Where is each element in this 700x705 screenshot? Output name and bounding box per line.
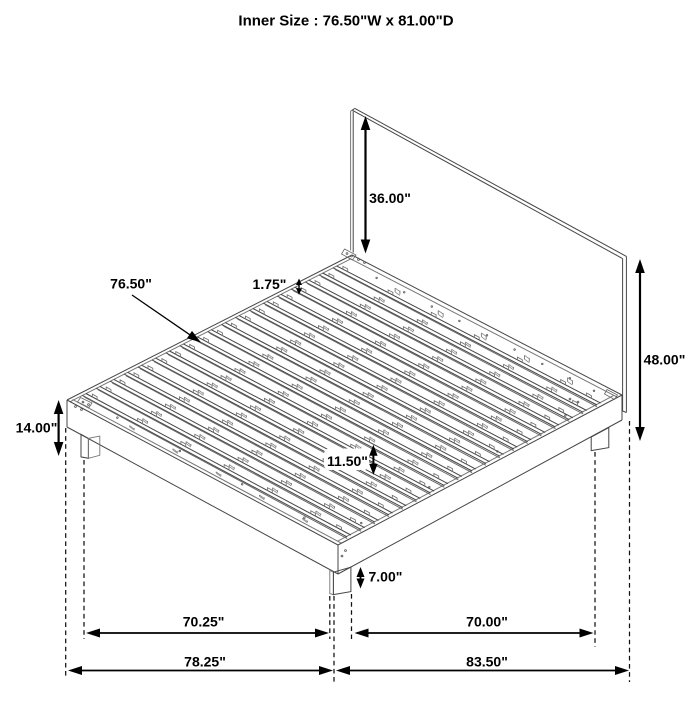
svg-text:78.25": 78.25" [184,654,226,670]
svg-text:14.00": 14.00" [16,420,58,436]
svg-text:Inner Size : 76.50"W x 81.00"D: Inner Size : 76.50"W x 81.00"D [238,13,453,30]
svg-text:83.50": 83.50" [466,654,508,670]
svg-text:48.00": 48.00" [644,352,686,368]
svg-text:76.50": 76.50" [110,276,152,292]
svg-text:7.00": 7.00" [369,569,403,585]
svg-text:36.00": 36.00" [369,190,411,206]
svg-text:11.50": 11.50" [327,453,368,469]
svg-text:70.25": 70.25" [183,614,225,630]
svg-text:1.75": 1.75" [253,276,287,292]
svg-text:70.00": 70.00" [466,614,508,630]
